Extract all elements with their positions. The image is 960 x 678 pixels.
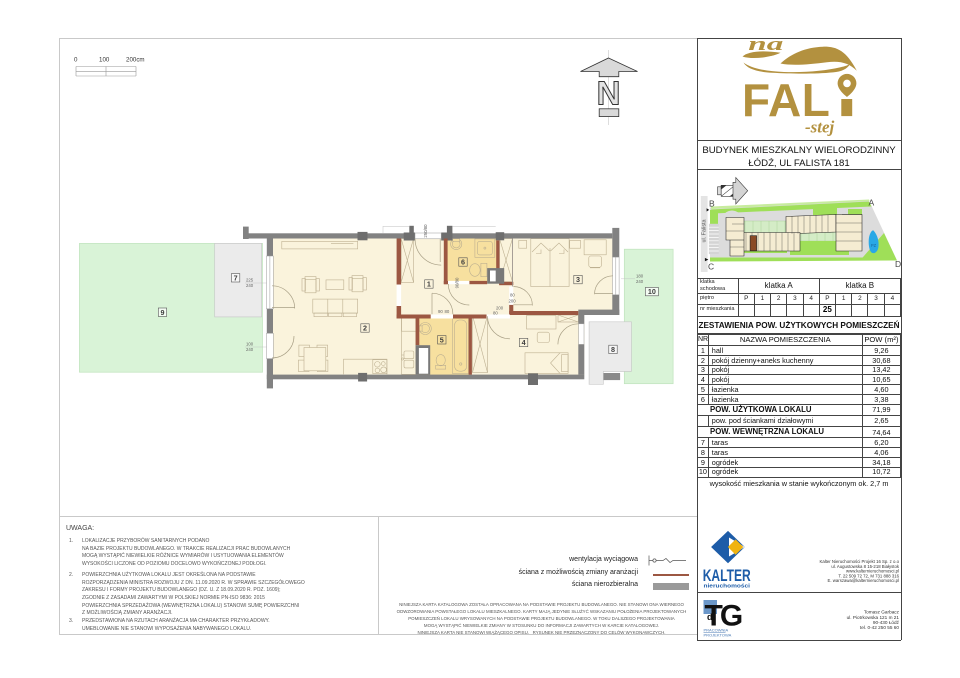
svg-text:2: 2	[363, 324, 367, 333]
svg-text:180: 180	[636, 274, 644, 279]
svg-text:-stej: -stej	[805, 118, 835, 137]
svg-text:5: 5	[440, 335, 444, 344]
svg-text:ul. Falista: ul. Falista	[702, 219, 708, 242]
svg-text:90: 90	[438, 309, 443, 314]
svg-text:tel. 0-42 250 55 60: tel. 0-42 250 55 60	[860, 625, 899, 630]
svg-text:240: 240	[636, 279, 644, 284]
svg-text:PZ: PZ	[871, 243, 877, 248]
svg-text:D: D	[895, 259, 901, 269]
svg-text:C: C	[708, 262, 714, 272]
svg-text:10: 10	[648, 287, 656, 296]
svg-text:N: N	[597, 75, 621, 112]
svg-text:100: 100	[246, 342, 254, 347]
svg-text:250/80: 250/80	[423, 224, 428, 238]
svg-text:nieruchomości: nieruchomości	[704, 584, 751, 590]
svg-text:6: 6	[461, 258, 465, 267]
svg-text:A: A	[869, 198, 875, 208]
svg-text:4: 4	[522, 338, 526, 347]
svg-text:240: 240	[246, 283, 254, 288]
svg-text:80: 80	[510, 292, 515, 297]
svg-text:7: 7	[234, 273, 238, 282]
svg-text:200cm: 200cm	[126, 57, 145, 64]
svg-text:80: 80	[445, 309, 450, 314]
svg-text:90/80: 90/80	[455, 277, 460, 288]
svg-text:0: 0	[74, 57, 78, 64]
svg-text:9: 9	[161, 308, 165, 317]
svg-text:1: 1	[427, 280, 431, 289]
svg-text:KALTER: KALTER	[703, 567, 751, 585]
svg-text:3: 3	[576, 275, 580, 284]
svg-text:100: 100	[99, 57, 110, 64]
svg-text:200: 200	[496, 306, 504, 311]
svg-text:8: 8	[611, 345, 615, 354]
svg-text:200: 200	[509, 298, 517, 303]
svg-text:E. warszawa@kalternieruchomosc: E. warszawa@kalternieruchomosci.pl	[828, 578, 900, 583]
svg-text:Tomasz Garbacz: Tomasz Garbacz	[864, 610, 900, 615]
svg-text:d: d	[707, 612, 713, 622]
svg-text:PROJEKTOWA: PROJEKTOWA	[704, 633, 732, 638]
svg-text:80: 80	[493, 311, 498, 316]
svg-text:B: B	[709, 198, 715, 208]
svg-text:225: 225	[246, 278, 254, 283]
svg-text:240: 240	[246, 347, 254, 352]
